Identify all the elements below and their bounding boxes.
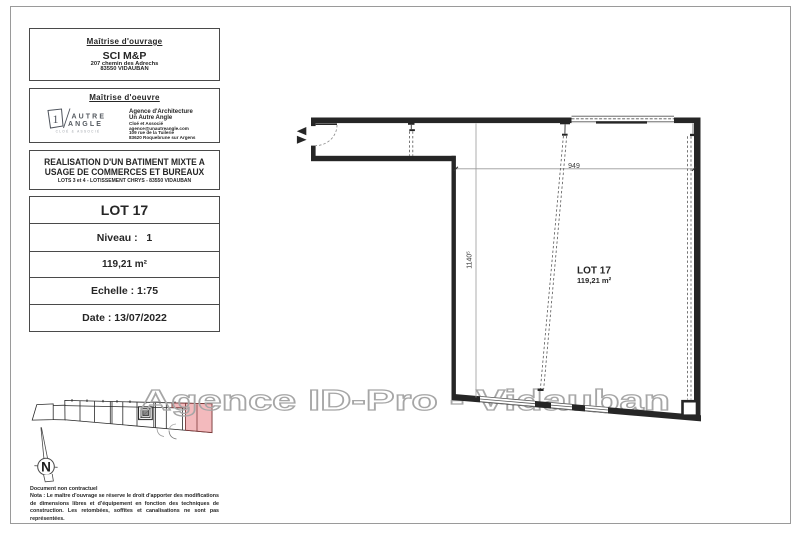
svg-text:LOT 17: LOT 17	[577, 266, 611, 277]
svg-text:Agence ID-Pro - Vidauban: Agence ID-Pro - Vidauban	[140, 385, 670, 417]
svg-text:11405: 11405	[466, 251, 474, 269]
svg-text:949: 949	[568, 163, 580, 170]
svg-text:119,21 m²: 119,21 m²	[577, 276, 612, 285]
svg-text:N: N	[41, 460, 51, 475]
